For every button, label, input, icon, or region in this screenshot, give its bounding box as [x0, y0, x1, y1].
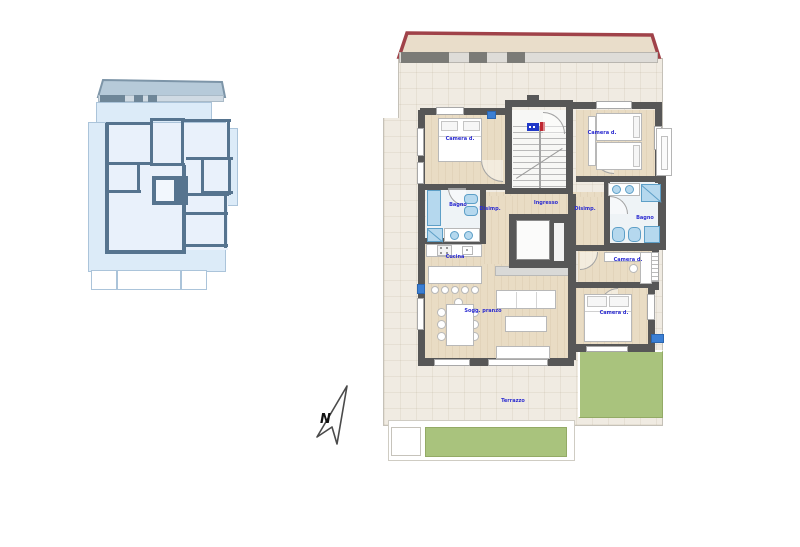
balcony [656, 128, 672, 176]
key-elevator-car [156, 180, 174, 201]
key-wall [224, 193, 227, 248]
sofa [496, 290, 556, 309]
key-wall [150, 163, 185, 166]
stool [431, 286, 439, 294]
key-wall [137, 163, 140, 192]
pillow [463, 121, 480, 131]
pillow [633, 116, 640, 138]
room-label-soggiorno: Sogg. pranzo [460, 308, 506, 314]
key-wall [148, 95, 157, 102]
faucet-dot [466, 249, 468, 251]
vent-marker [651, 334, 664, 343]
coffee-table [505, 316, 547, 332]
unit-entry-badge [527, 123, 539, 131]
toilet [612, 227, 625, 242]
desk-stool [629, 264, 638, 273]
sink-basin [464, 231, 473, 240]
wall [420, 108, 511, 115]
bathtub [427, 190, 441, 226]
kitchen-island [428, 266, 482, 284]
key-wall [227, 121, 230, 160]
roof-wall-segment [507, 52, 525, 63]
garden-planter-box [391, 427, 421, 456]
window [417, 162, 424, 184]
room-label-disimpegno-left: Disimp. [478, 206, 502, 212]
key-garden-box [91, 270, 117, 290]
wall [505, 100, 573, 107]
window [586, 346, 628, 352]
dining-chair [437, 320, 446, 329]
vent-marker [417, 284, 425, 294]
corridor-right-floor [576, 197, 606, 250]
pillow [441, 121, 458, 131]
room-label-bagno-right: Bagno [630, 215, 660, 221]
wall [566, 104, 573, 194]
key-wall [105, 123, 109, 254]
window [596, 101, 632, 109]
key-wall [108, 190, 141, 193]
pillow [633, 145, 640, 167]
room-label-camera-br: Camera d. [590, 310, 638, 316]
key-wall [100, 95, 125, 102]
key-wall [150, 120, 153, 166]
key-wall [186, 193, 229, 196]
burner [440, 247, 442, 249]
washbasin [644, 226, 660, 243]
key-wall [150, 118, 185, 121]
stool [451, 286, 459, 294]
wall [505, 188, 573, 194]
stool [461, 286, 469, 294]
elevator-shaft-slot [554, 223, 564, 261]
terrace-step-cover [380, 58, 398, 118]
vent-marker [487, 111, 496, 119]
room-label-cucina: Cucina [441, 254, 469, 260]
window [488, 359, 548, 366]
floor-plan-canvas: N [0, 0, 800, 547]
garden-right [578, 350, 663, 418]
garden-bottom [425, 427, 567, 457]
sink-basin [612, 185, 621, 194]
terrace-step-line [398, 58, 399, 118]
key-wall [184, 244, 228, 247]
sofa-bench [496, 346, 550, 359]
wall-chimney-notch [527, 95, 539, 102]
key-garden-box [117, 270, 181, 290]
wall [576, 176, 662, 182]
key-wall [105, 250, 186, 254]
stool [441, 286, 449, 294]
stool [471, 286, 479, 294]
key-wall [201, 160, 204, 194]
room-label-camera-tl: Camera d. [436, 136, 484, 142]
key-wall [186, 157, 233, 160]
sink-basin [450, 231, 459, 240]
bidet [628, 227, 641, 242]
key-wall [186, 212, 228, 215]
roof-wall-segment [401, 52, 449, 63]
burner [446, 247, 448, 249]
wall [576, 245, 656, 251]
key-garden-box [181, 270, 207, 290]
window [436, 107, 464, 115]
north-arrow-icon: N [308, 382, 364, 450]
key-wall [184, 119, 231, 122]
window [417, 128, 424, 156]
key-wall [134, 95, 143, 102]
window [647, 294, 655, 320]
room-label-terrazzo: Terrazzo [494, 398, 532, 404]
room-label-camera-tr: Camera d. [578, 130, 626, 136]
key-wall [228, 157, 231, 195]
pillow [609, 296, 629, 307]
dining-chair [437, 332, 446, 341]
room-label-disimpegno-right: Disimp. [573, 206, 597, 212]
elevator-car [516, 220, 550, 260]
window [417, 298, 424, 330]
dining-chair [437, 308, 446, 317]
window [434, 359, 470, 366]
wall [505, 104, 512, 194]
sink-basin [625, 185, 634, 194]
room-label-ingresso: Ingresso [532, 200, 560, 206]
room-label-camera-mid: Camera d. [604, 257, 652, 263]
wardrobe [588, 116, 596, 166]
roof-wall-segment [469, 52, 487, 63]
key-wall [181, 120, 184, 166]
stair-divider [539, 126, 541, 188]
room-label-bagno-left: Bagno [444, 202, 472, 208]
pillow [587, 296, 607, 307]
key-wall [106, 122, 153, 125]
window [651, 252, 659, 282]
key-plan-miniature [85, 78, 243, 296]
north-label: N [320, 412, 331, 427]
key-wall [108, 162, 153, 165]
wall [480, 188, 486, 244]
